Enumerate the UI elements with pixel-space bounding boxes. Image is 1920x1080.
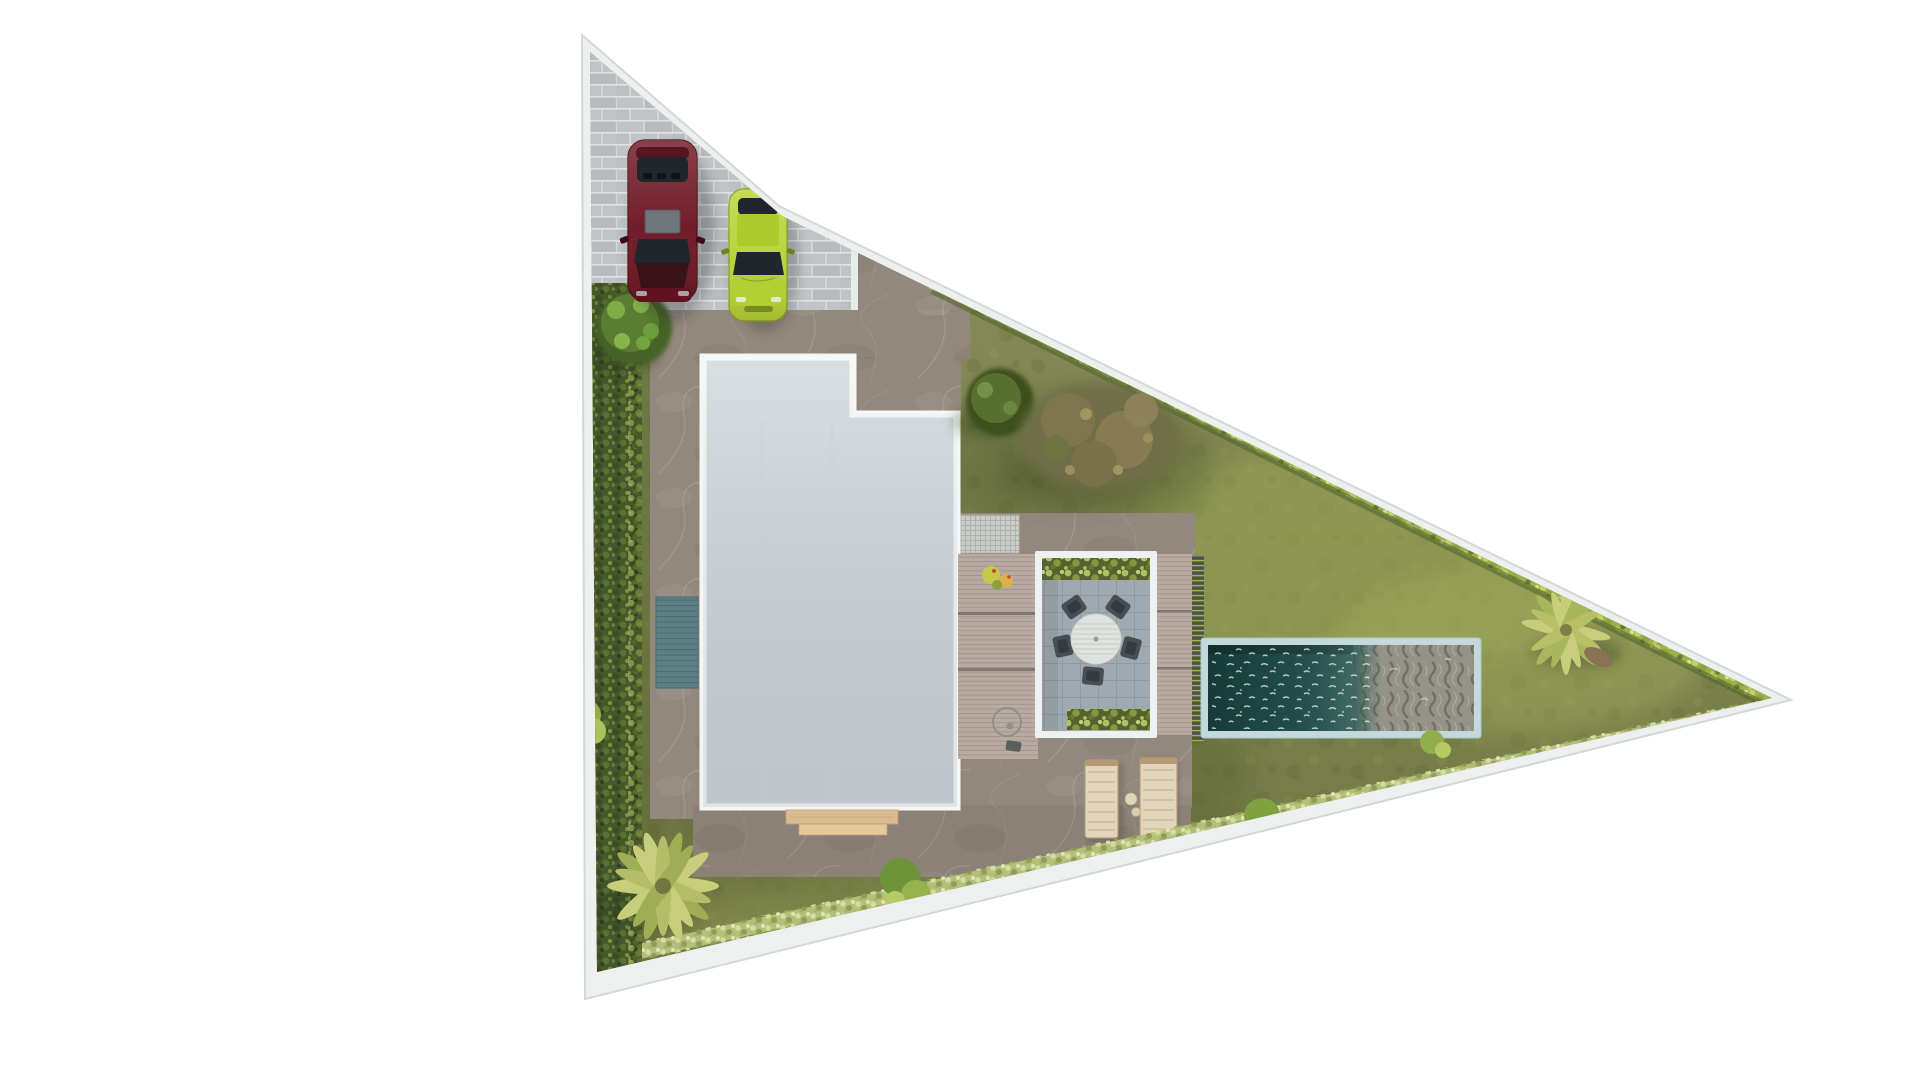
car-green-grille xyxy=(744,306,773,312)
table-centre xyxy=(1094,637,1099,642)
house-roof xyxy=(703,357,957,807)
shower-drain xyxy=(1007,723,1014,730)
car-red-sunroof xyxy=(645,210,680,233)
planter-south-foliage xyxy=(1067,709,1150,730)
pool-sparkle xyxy=(1212,647,1370,729)
car-red-light-right xyxy=(678,291,689,296)
car-green-windshield xyxy=(733,252,784,275)
deck-stool xyxy=(1005,740,1021,752)
courtyard-deck xyxy=(958,554,1038,759)
headrest-2 xyxy=(657,173,666,179)
deck-joint-1 xyxy=(958,612,1038,615)
roof-shading xyxy=(703,357,957,807)
car-green-light-right xyxy=(771,297,781,302)
side-table-1 xyxy=(1125,793,1137,805)
headrest-1 xyxy=(643,173,652,179)
louvre-canopy xyxy=(961,515,1019,553)
car-red-windshield xyxy=(634,239,691,263)
side-table-2 xyxy=(1132,808,1141,817)
planter-north-foliage xyxy=(1042,558,1150,580)
water-runnel xyxy=(656,597,698,688)
dining-pavilion xyxy=(1035,551,1157,738)
car-green-light-left xyxy=(736,297,746,302)
car-red-light-left xyxy=(636,291,647,296)
east-deck-band xyxy=(1157,554,1192,735)
lounger-1-headrest xyxy=(1085,760,1118,766)
lap-pool xyxy=(1201,638,1481,738)
entry-steps xyxy=(786,810,898,835)
headrest-3 xyxy=(671,173,680,179)
deck-joint-2 xyxy=(958,668,1038,671)
site-plan-render xyxy=(0,0,1920,1080)
lounger-2-headrest xyxy=(1140,758,1177,764)
car-red-sedan xyxy=(619,140,715,321)
car-green-roof xyxy=(737,214,779,246)
step-lower xyxy=(799,824,887,835)
